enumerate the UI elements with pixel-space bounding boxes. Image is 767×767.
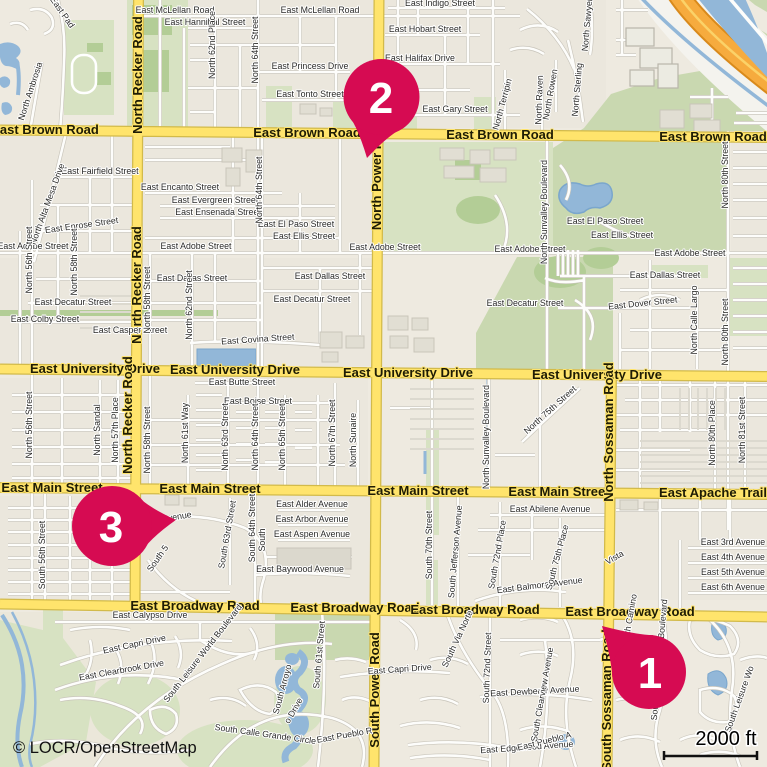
svg-text:© LOCR/OpenStreetMap: © LOCR/OpenStreetMap: [13, 739, 197, 757]
svg-text:East University Drive: East University Drive: [30, 361, 160, 376]
svg-text:East Brown Road: East Brown Road: [659, 129, 767, 144]
svg-text:North 81st Street: North 81st Street: [737, 396, 747, 463]
svg-text:East University Drive: East University Drive: [170, 362, 300, 377]
svg-text:North 62nd Street: North 62nd Street: [184, 270, 194, 340]
svg-text:3: 3: [99, 503, 123, 552]
svg-text:North 62nd Place: North 62nd Place: [207, 11, 217, 79]
svg-text:East Decatur Street: East Decatur Street: [35, 297, 112, 307]
svg-text:East Ensenada Street: East Ensenada Street: [175, 207, 261, 217]
svg-text:North 64th Street: North 64th Street: [254, 156, 264, 224]
svg-text:North 57th Place: North 57th Place: [110, 397, 120, 463]
svg-text:East Hobart Street: East Hobart Street: [389, 24, 462, 34]
svg-text:East Halifax Drive: East Halifax Drive: [385, 53, 455, 63]
svg-text:East Brown Road: East Brown Road: [253, 125, 361, 140]
svg-text:North Sunvalley Boulevard: North Sunvalley Boulevard: [481, 385, 491, 489]
svg-text:North 67th Street: North 67th Street: [327, 399, 337, 467]
svg-text:North 58th Street: North 58th Street: [69, 228, 79, 296]
svg-text:East Main Street: East Main Street: [1, 480, 103, 495]
svg-text:East Evergreen Street: East Evergreen Street: [172, 195, 259, 205]
svg-text:East Butte Street: East Butte Street: [209, 377, 276, 387]
svg-text:East Brown Road: East Brown Road: [0, 122, 99, 137]
svg-text:East Abilene Avenue: East Abilene Avenue: [510, 504, 591, 514]
svg-text:East Apache Trail: East Apache Trail: [659, 485, 767, 500]
svg-text:East Adobe Street: East Adobe Street: [350, 242, 421, 252]
svg-text:East Princess Drive: East Princess Drive: [272, 61, 349, 71]
svg-text:East Baywood Avenue: East Baywood Avenue: [256, 564, 344, 574]
svg-text:North 65th Street: North 65th Street: [277, 403, 287, 471]
svg-text:South: South: [257, 528, 267, 551]
svg-text:2: 2: [369, 74, 393, 123]
svg-text:North Sunvalley Boulevard: North Sunvalley Boulevard: [539, 160, 549, 264]
svg-text:East Alder Avenue: East Alder Avenue: [276, 499, 348, 509]
svg-text:East Ellis Street: East Ellis Street: [591, 230, 654, 240]
svg-text:North 63rd Street: North 63rd Street: [220, 403, 230, 471]
svg-text:North Sandal: North Sandal: [92, 404, 102, 455]
svg-text:North 64th Street: North 64th Street: [250, 403, 260, 471]
svg-text:South 56th Street: South 56th Street: [37, 520, 47, 589]
svg-text:East Indigo Street: East Indigo Street: [405, 0, 475, 8]
svg-text:North 58th Street: North 58th Street: [142, 266, 152, 334]
svg-text:East El Paso Street: East El Paso Street: [258, 219, 335, 229]
svg-text:East 4th Avenue: East 4th Avenue: [701, 552, 765, 562]
svg-text:East University Drive: East University Drive: [343, 365, 473, 380]
svg-text:East Main Street: East Main Street: [367, 483, 469, 498]
svg-text:East Tonto Street: East Tonto Street: [276, 89, 344, 99]
svg-text:East Broadway Road: East Broadway Road: [410, 602, 539, 617]
svg-text:East Encanto Street: East Encanto Street: [141, 182, 220, 192]
svg-text:East Decatur Street: East Decatur Street: [487, 298, 564, 308]
svg-text:North 61st Way: North 61st Way: [180, 402, 190, 463]
svg-text:North Sossaman Road: North Sossaman Road: [601, 362, 616, 501]
svg-text:East Broadway Road: East Broadway Road: [290, 600, 419, 615]
svg-text:East Colby Street: East Colby Street: [11, 314, 80, 324]
svg-text:1: 1: [638, 649, 662, 698]
svg-text:North Recker Road: North Recker Road: [120, 356, 135, 474]
svg-text:South 70th Street: South 70th Street: [424, 510, 434, 579]
svg-text:North Recker Road: North Recker Road: [130, 16, 145, 134]
svg-text:East Ellis Street: East Ellis Street: [273, 231, 336, 241]
svg-text:East 3rd Avenue: East 3rd Avenue: [701, 537, 766, 547]
svg-text:North Calle Largo: North Calle Largo: [689, 285, 699, 354]
svg-text:East Main Street: East Main Street: [159, 481, 261, 496]
svg-text:East Aspen Avenue: East Aspen Avenue: [274, 529, 350, 539]
svg-text:East Fairfield Street: East Fairfield Street: [61, 166, 139, 176]
svg-text:East Hannibal Street: East Hannibal Street: [165, 17, 246, 27]
svg-text:North 80th Place: North 80th Place: [707, 400, 717, 466]
svg-text:North 56th Street: North 56th Street: [24, 226, 34, 294]
svg-text:East Dallas Street: East Dallas Street: [630, 270, 701, 280]
svg-text:North Sunaire: North Sunaire: [348, 413, 358, 467]
svg-text:South 64th Street: South 64th Street: [247, 493, 257, 562]
svg-text:North 80th Street: North 80th Street: [720, 141, 730, 209]
svg-text:East Gary Street: East Gary Street: [422, 104, 488, 114]
svg-text:North 56th Street: North 56th Street: [24, 391, 34, 459]
svg-text:East El Paso Street: East El Paso Street: [567, 216, 644, 226]
svg-text:East 5th Avenue: East 5th Avenue: [701, 567, 765, 577]
svg-text:East Decatur Street: East Decatur Street: [274, 294, 351, 304]
svg-text:East Adobe Street: East Adobe Street: [495, 244, 566, 254]
svg-text:2000 ft: 2000 ft: [695, 728, 757, 750]
svg-text:North 64th Street: North 64th Street: [250, 16, 260, 84]
svg-text:East University Drive: East University Drive: [532, 367, 662, 382]
svg-text:East Calypso Drive: East Calypso Drive: [113, 610, 188, 620]
svg-text:North 80th Street: North 80th Street: [720, 298, 730, 366]
svg-text:East Adobe Street: East Adobe Street: [655, 248, 726, 258]
svg-text:East Dallas Street: East Dallas Street: [295, 271, 366, 281]
svg-text:North 58th Street: North 58th Street: [142, 406, 152, 474]
svg-text:East 6th Avenue: East 6th Avenue: [701, 582, 765, 592]
svg-text:East Arbor Avenue: East Arbor Avenue: [276, 514, 349, 524]
svg-text:East Adobe Street: East Adobe Street: [161, 241, 232, 251]
svg-text:East McLellan Road: East McLellan Road: [136, 5, 215, 15]
svg-text:East Casper Street: East Casper Street: [93, 325, 168, 335]
svg-text:East McLellan Road: East McLellan Road: [281, 5, 360, 15]
svg-text:East Main Street: East Main Street: [508, 484, 610, 499]
